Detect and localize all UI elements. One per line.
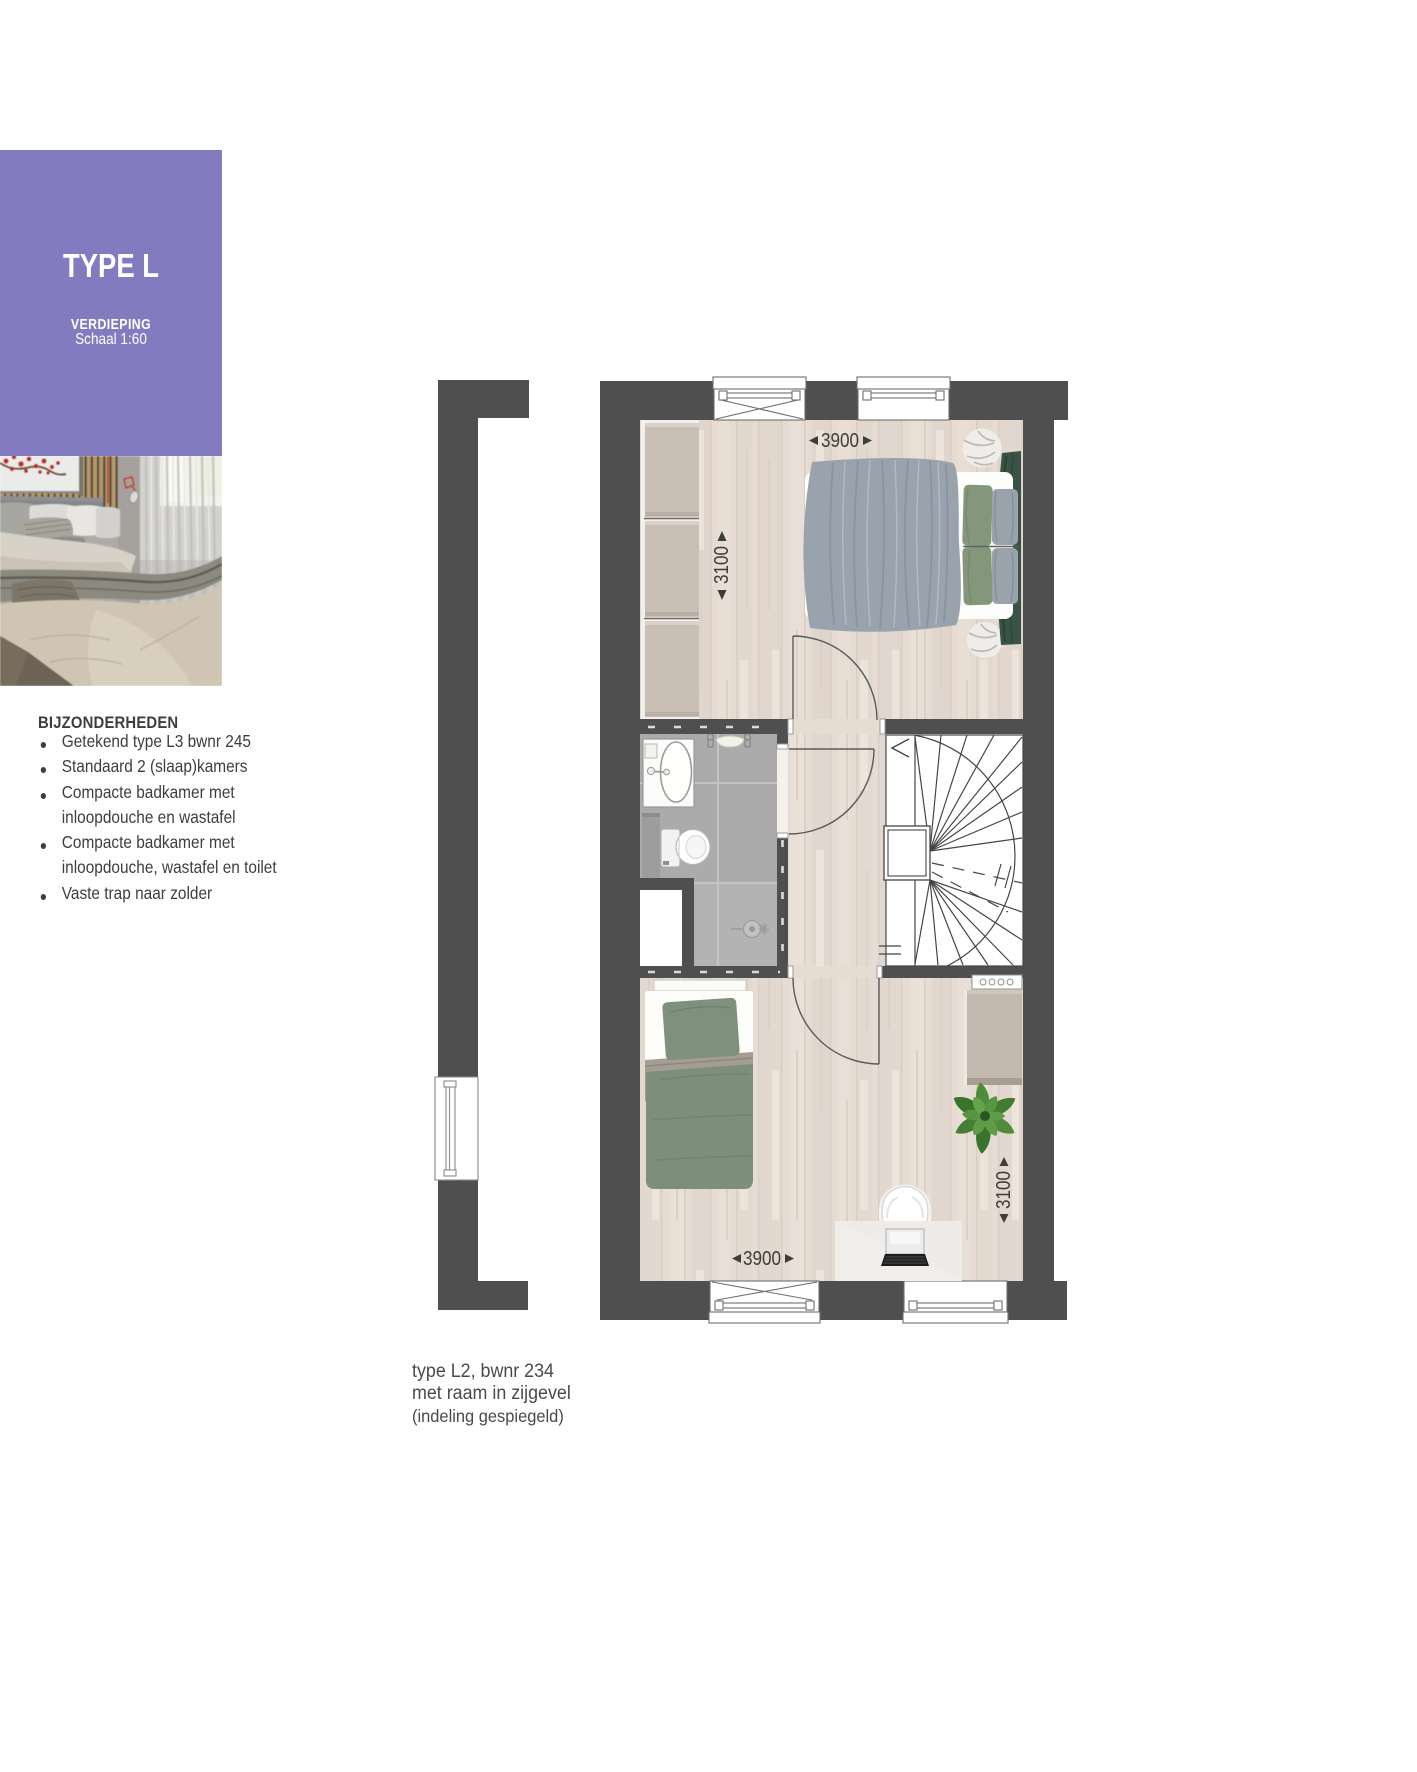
svg-text:3900: 3900 [821, 430, 859, 452]
svg-text:3100: 3100 [711, 546, 733, 584]
svg-text:3100: 3100 [993, 1171, 1015, 1209]
svg-text:3900: 3900 [743, 1248, 781, 1270]
